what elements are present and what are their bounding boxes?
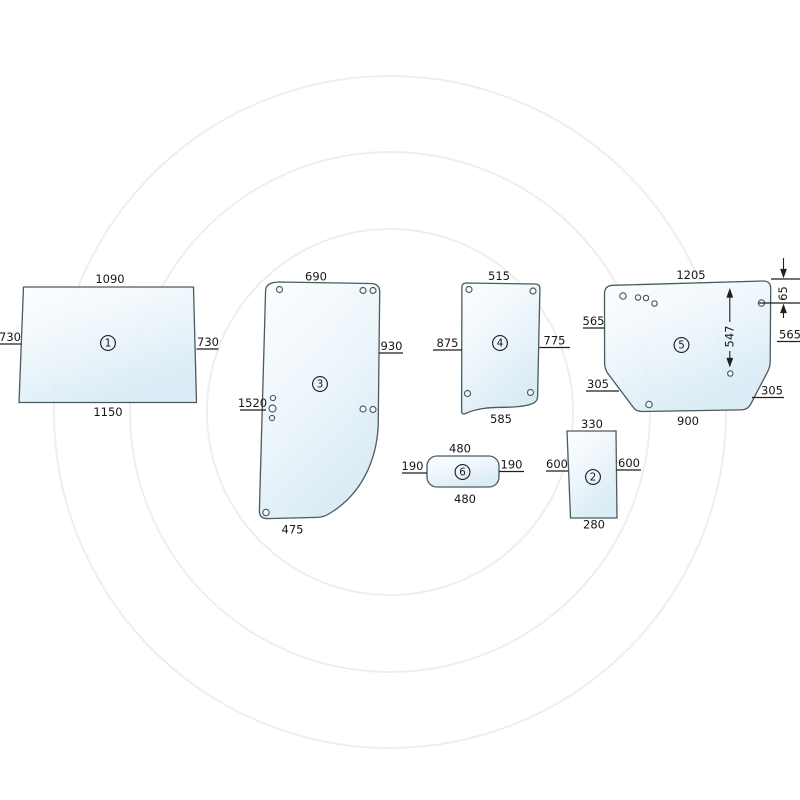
mounting-hole	[269, 415, 274, 420]
panel-3-dim-top: 690	[305, 270, 327, 284]
arrowhead-up	[780, 304, 787, 313]
panel-2-group: 330 600 600 280 2	[546, 417, 641, 532]
mounting-hole	[528, 390, 534, 396]
mounting-hole	[370, 407, 376, 413]
panel-5-dim-bottom: 900	[677, 414, 699, 428]
panel-4-dim-bottom: 585	[490, 412, 512, 426]
mounting-hole	[263, 509, 269, 515]
panel-6-dim-bottom: 480	[454, 492, 476, 506]
mounting-hole	[530, 288, 536, 294]
panel-5-number: 5	[678, 340, 685, 352]
mounting-hole	[646, 401, 652, 407]
panel-4-dim-right: 775	[544, 334, 566, 348]
panel-6-group: 480 190 190 480 6	[402, 442, 524, 507]
panel-3-dim-bottom: 475	[282, 523, 304, 537]
panel-6-number: 6	[459, 467, 466, 479]
panel-5-dim-top: 1205	[676, 268, 705, 282]
panel-5-dim-hole-span: 547	[723, 326, 737, 348]
arrowhead-down	[780, 269, 787, 278]
mounting-hole	[360, 406, 366, 412]
panel-4-dim-left: 875	[437, 336, 459, 350]
panel-1-dim-top: 1090	[95, 272, 124, 286]
panel-2-dim-right: 600	[618, 456, 640, 470]
mounting-hole	[370, 288, 376, 294]
panel-4-dim-top: 515	[488, 269, 510, 283]
panel-2-number: 2	[590, 472, 597, 484]
glass-parts-diagram: 1090 1150 730 730 1 690 930 1520 475 3	[0, 0, 800, 800]
mounting-hole	[465, 391, 471, 397]
mounting-hole	[269, 405, 276, 412]
panel-5-dim-hole-offset: 65	[776, 286, 790, 301]
panel-5-glass-shape	[605, 281, 771, 412]
panel-2-dim-bottom: 280	[583, 518, 605, 532]
panel-6-dim-left: 190	[402, 459, 424, 473]
panel-3-dim-left: 1520	[238, 396, 267, 410]
panel-6-dim-right: 190	[501, 458, 523, 472]
mounting-hole	[652, 301, 657, 306]
mounting-hole	[270, 395, 275, 400]
panel-4-number: 4	[497, 338, 504, 350]
mounting-hole	[620, 293, 626, 299]
panel-1-dim-left: 730	[0, 330, 21, 344]
panel-1-dim-right: 730	[197, 335, 219, 349]
panel-3-number: 3	[317, 379, 324, 391]
panel-6-dim-top: 480	[449, 442, 471, 456]
mounting-hole	[360, 288, 366, 294]
watermark-circle-outer	[54, 76, 726, 748]
panel-5-dim-left-lower: 305	[587, 377, 609, 391]
panel-1-group: 1090 1150 730 730 1	[0, 272, 219, 419]
panel-5-dim-right-lower: 305	[761, 384, 783, 398]
diagram-canvas: 1090 1150 730 730 1 690 930 1520 475 3	[0, 0, 800, 800]
panel-4-group: 515 875 775 585 4	[433, 269, 570, 426]
panel-3-glass-shape	[259, 282, 379, 519]
panel-2-dim-top: 330	[581, 417, 603, 431]
watermark	[54, 76, 726, 748]
panel-5-dim-right: 565	[779, 328, 800, 342]
panel-3-dim-right: 930	[381, 339, 403, 353]
mounting-hole	[643, 295, 648, 300]
panel-3-group: 690 930 1520 475 3	[238, 270, 403, 537]
mounting-hole	[466, 287, 472, 293]
mounting-hole	[277, 287, 283, 293]
panel-1-dim-bottom: 1150	[93, 405, 122, 419]
mounting-hole	[635, 295, 640, 300]
mounting-hole	[728, 371, 733, 376]
panel-5-dim-left: 565	[583, 314, 605, 328]
panel-1-number: 1	[105, 338, 112, 350]
panel-2-dim-left: 600	[546, 457, 568, 471]
